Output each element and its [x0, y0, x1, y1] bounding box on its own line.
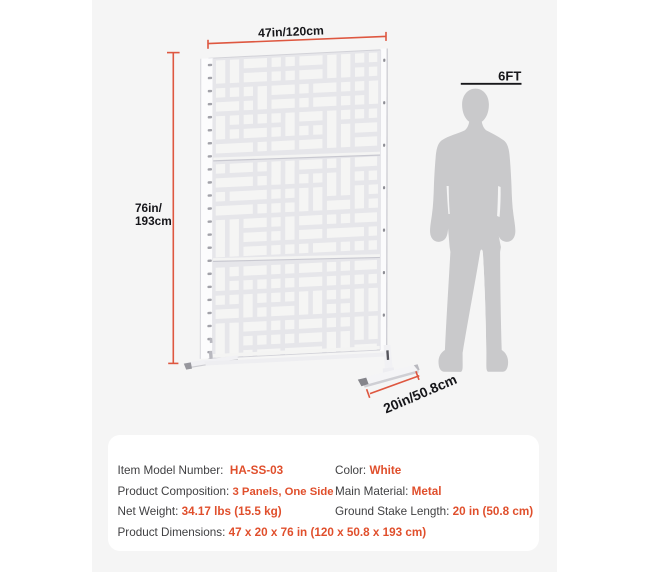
svg-text:193cm: 193cm	[135, 214, 172, 228]
svg-text:6FT: 6FT	[498, 69, 521, 84]
svg-text:47in/120cm: 47in/120cm	[258, 23, 324, 40]
